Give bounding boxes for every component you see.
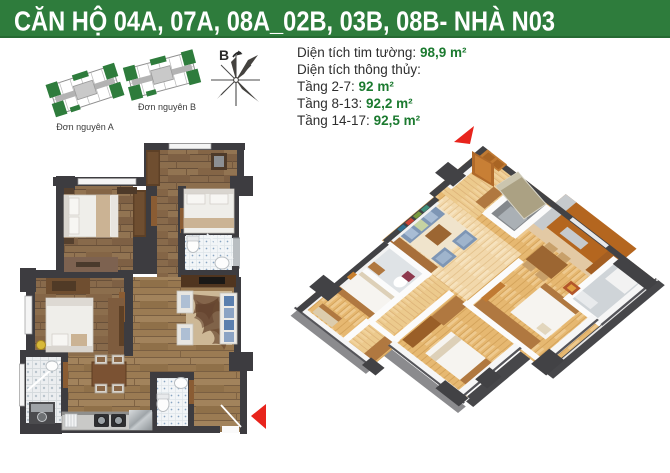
svg-text:Diện tích thông thủy:: Diện tích thông thủy: xyxy=(297,62,421,77)
svg-text:Tầng 14-17: 92,5 m²: Tầng 14-17: 92,5 m² xyxy=(297,113,421,128)
svg-text:Đơn nguyên A: Đơn nguyên A xyxy=(56,122,113,132)
svg-text:Tầng 2-7: 92 m²: Tầng 2-7: 92 m² xyxy=(297,79,394,94)
svg-text:Diện tích tim tường: 98,9 m²: Diện tích tim tường: 98,9 m² xyxy=(297,45,467,60)
svg-text:B: B xyxy=(219,47,229,63)
svg-text:CĂN HỘ 04A, 07A, 08A_02B, 03B,: CĂN HỘ 04A, 07A, 08A_02B, 03B, 08B- NHÀ … xyxy=(14,5,555,37)
svg-text:Đơn nguyên B: Đơn nguyên B xyxy=(138,102,196,112)
svg-text:Tầng 8-13: 92,2 m²: Tầng 8-13: 92,2 m² xyxy=(297,96,413,111)
